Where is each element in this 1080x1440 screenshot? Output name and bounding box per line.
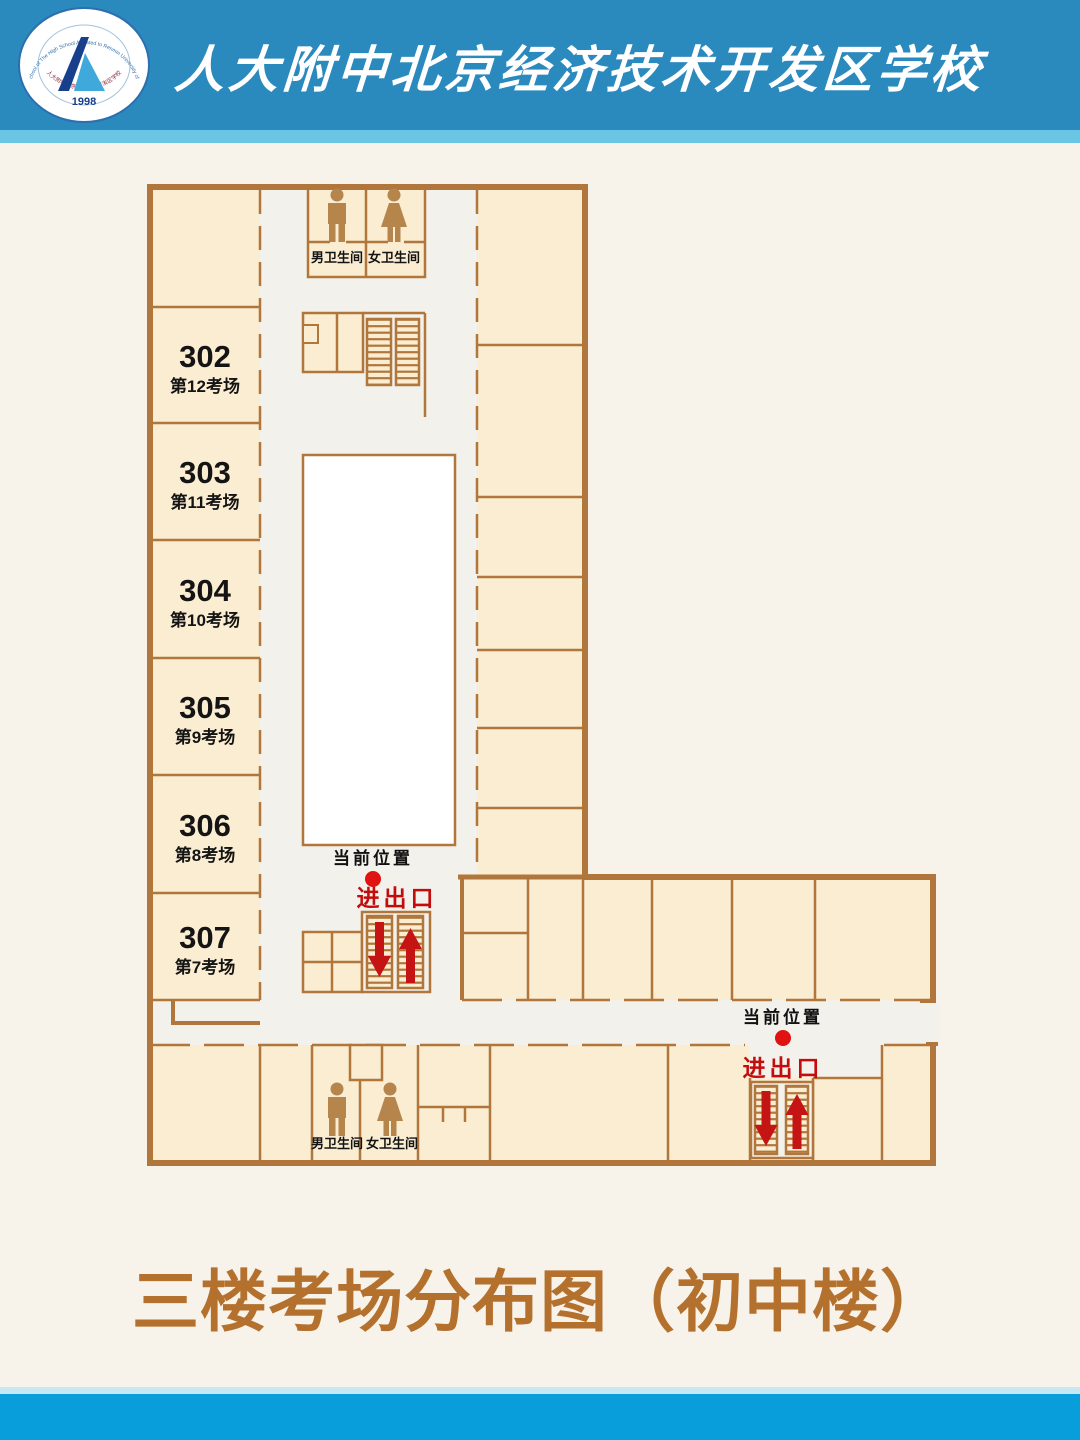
male-restroom-label: 男卫生间 (311, 250, 363, 265)
courtyard (303, 455, 455, 845)
female-restroom-label: 女卫生间 (368, 250, 420, 265)
room-exam-label: 第10考场 (170, 610, 240, 630)
room-exam-label: 第9考场 (175, 727, 235, 747)
map-title: 三楼考场分布图（初中楼） (0, 1248, 1080, 1345)
current-location-label: 当前位置 (333, 848, 413, 868)
room-number: 307 (179, 920, 231, 955)
room-number: 302 (179, 339, 231, 374)
poster-page: BDA School of The High School Affiliated… (0, 0, 1080, 1440)
footer-accent-strip (0, 1387, 1080, 1394)
room-exam-label: 第8考场 (175, 845, 235, 865)
current-location-dot (775, 1030, 791, 1046)
entrance-exit-label: 进出口 (357, 885, 438, 911)
current-location-label: 当前位置 (743, 1007, 823, 1027)
male-restroom-label: 男卫生间 (311, 1136, 363, 1151)
footer-band (0, 1394, 1080, 1440)
room-number: 304 (179, 573, 231, 608)
room-number: 306 (179, 808, 231, 843)
female-restroom-label: 女卫生间 (366, 1136, 418, 1151)
room-exam-label: 第7考场 (175, 957, 235, 977)
room-number: 303 (179, 455, 231, 490)
room-exam-label: 第11考场 (171, 492, 240, 512)
room-exam-label: 第12考场 (170, 376, 240, 396)
floor-plan: 302 第12考场 303 第11考场 304 第10考场 305 第9考场 3… (0, 0, 1080, 1440)
room-number: 305 (179, 690, 231, 725)
entrance-exit-label: 进出口 (743, 1055, 824, 1081)
